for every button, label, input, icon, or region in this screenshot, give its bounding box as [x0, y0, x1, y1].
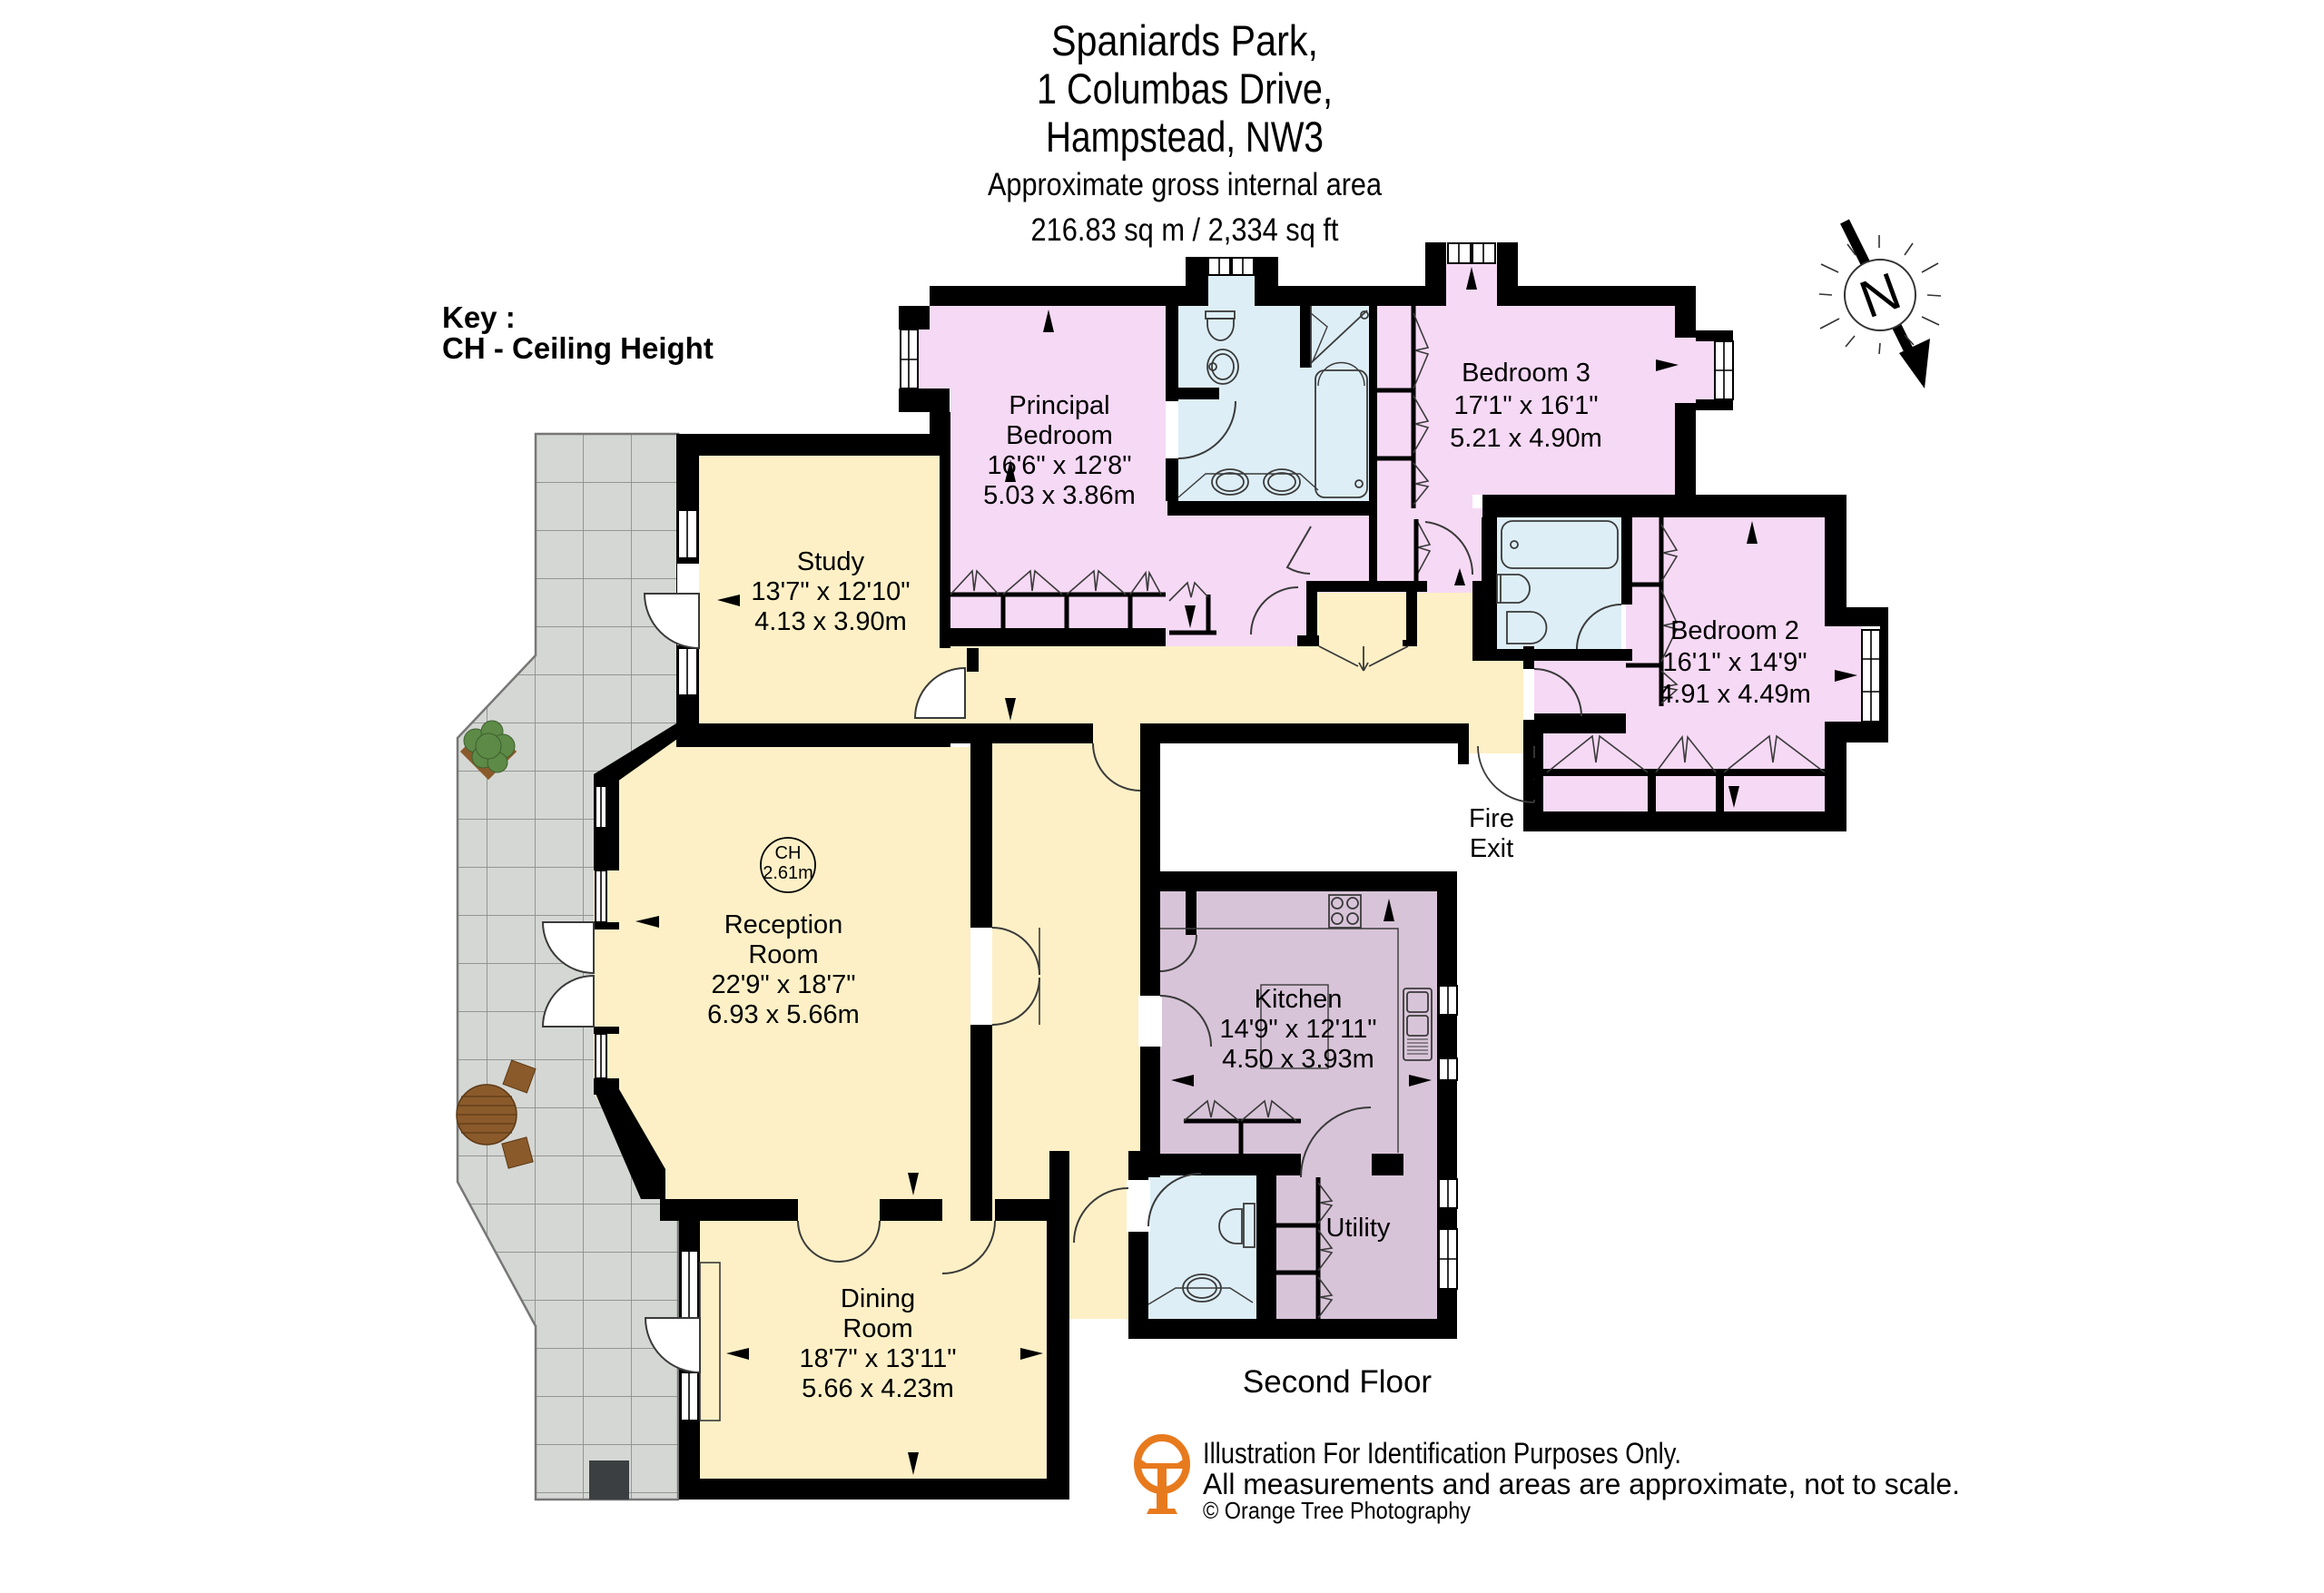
svg-text:Fire: Fire: [1469, 804, 1514, 833]
svg-text:CH: CH: [775, 843, 802, 863]
svg-text:17'1" x 16'1": 17'1" x 16'1": [1453, 391, 1598, 420]
svg-text:Approximate gross internal are: Approximate gross internal area: [988, 167, 1382, 202]
svg-text:16'1" x 14'9": 16'1" x 14'9": [1662, 648, 1807, 677]
svg-text:Reception: Reception: [724, 910, 843, 939]
svg-text:216.83 sq m / 2,334 sq ft: 216.83 sq m / 2,334 sq ft: [1031, 212, 1339, 248]
svg-text:22'9" x 18'7": 22'9" x 18'7": [711, 970, 855, 999]
svg-text:Dining: Dining: [841, 1284, 915, 1313]
svg-text:4.91 x 4.49m: 4.91 x 4.49m: [1659, 680, 1811, 709]
svg-text:Bedroom 2: Bedroom 2: [1670, 616, 1799, 645]
svg-text:Study: Study: [797, 547, 865, 576]
svg-text:All measurements and areas are: All measurements and areas are approxima…: [1203, 1468, 1960, 1500]
svg-text:5.03 x 3.86m: 5.03 x 3.86m: [983, 481, 1136, 510]
svg-text:Illustration For Identificatio: Illustration For Identification Purposes…: [1203, 1437, 1681, 1470]
svg-text:6.93 x 5.66m: 6.93 x 5.66m: [707, 1000, 860, 1029]
svg-text:14'9" x 12'11": 14'9" x 12'11": [1219, 1015, 1376, 1044]
svg-text:Kitchen: Kitchen: [1255, 985, 1343, 1014]
svg-text:13'7" x 12'10": 13'7" x 12'10": [751, 577, 910, 606]
svg-text:Room: Room: [748, 940, 818, 969]
svg-text:CH - Ceiling Height: CH - Ceiling Height: [442, 331, 714, 365]
svg-text:Hampstead, NW3: Hampstead, NW3: [1046, 113, 1324, 161]
svg-text:Exit: Exit: [1470, 834, 1513, 863]
svg-text:Spaniards Park,: Spaniards Park,: [1051, 16, 1318, 64]
svg-text:5.21 x 4.90m: 5.21 x 4.90m: [1450, 424, 1602, 453]
svg-text:4.13 x 3.90m: 4.13 x 3.90m: [754, 607, 907, 636]
svg-text:Key :: Key :: [442, 300, 516, 334]
svg-text:16'6" x 12'8": 16'6" x 12'8": [987, 451, 1131, 480]
svg-text:18'7" x 13'11": 18'7" x 13'11": [799, 1344, 956, 1373]
svg-text:Utility: Utility: [1326, 1214, 1391, 1243]
svg-text:Room: Room: [842, 1314, 912, 1343]
svg-text:Second Floor: Second Floor: [1243, 1364, 1433, 1400]
svg-text:© Orange Tree Photography: © Orange Tree Photography: [1203, 1497, 1471, 1524]
svg-text:4.50 x 3.93m: 4.50 x 3.93m: [1222, 1045, 1374, 1074]
svg-text:2.61m: 2.61m: [763, 863, 813, 883]
svg-text:Bedroom 3: Bedroom 3: [1462, 359, 1590, 388]
svg-text:Bedroom: Bedroom: [1006, 421, 1113, 450]
svg-text:Principal: Principal: [1009, 391, 1109, 420]
svg-text:1 Columbas Drive,: 1 Columbas Drive,: [1037, 64, 1333, 113]
svg-text:5.66 x 4.23m: 5.66 x 4.23m: [802, 1374, 954, 1403]
